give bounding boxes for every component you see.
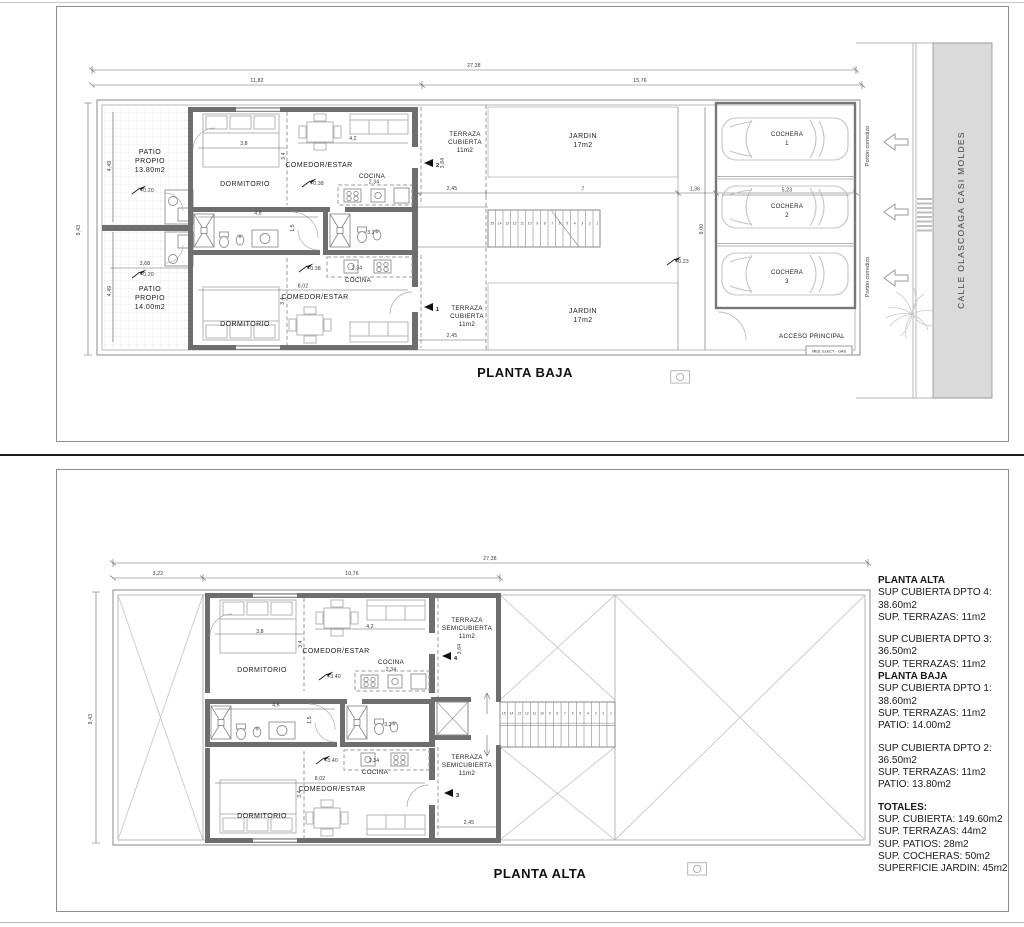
dim-label: 3,8	[256, 629, 264, 635]
room-area-label: 17m2	[573, 142, 592, 149]
stair-step-number: 15	[502, 712, 506, 716]
level-label: +0.20	[140, 188, 154, 194]
dim-label: 3,8	[240, 141, 248, 147]
room-area-label: 11m2	[459, 633, 476, 640]
meter-box-label: MED. ELECT. - GAS	[812, 350, 846, 354]
pa-level-markers	[316, 672, 334, 765]
pb-corridor-baths	[188, 207, 690, 383]
dim-label: 3,4	[298, 640, 304, 648]
stair-step-number: 8	[544, 222, 546, 226]
cochera-number: 3	[785, 279, 789, 285]
unit2-entry-arrow-icon	[424, 159, 433, 167]
dim-label: 4,49	[107, 286, 113, 297]
dim-label: 9,00	[699, 224, 705, 235]
stair-step-number: 14	[510, 712, 514, 716]
street-name-label: CALLE OLASCOAGA CASI MOLDES	[956, 131, 966, 309]
pa-corridor-baths	[205, 699, 707, 875]
room-label-cocina: COCINA	[378, 659, 405, 666]
stair-step-number: 6	[559, 222, 561, 226]
dim-label: 15,76	[633, 78, 647, 84]
dim-label: 2,34	[352, 266, 363, 272]
room-label-dormitorio: DORMITORIO	[220, 181, 270, 188]
stair-step-number: 14	[498, 222, 502, 226]
room-label-jardin: JARDIN	[569, 133, 597, 140]
summary-line: 38.60m2	[878, 696, 1016, 708]
room-area-label: 13.80m2	[135, 167, 165, 174]
summary-line: TOTALES:	[878, 802, 1016, 814]
room-area-label: 14.00m2	[135, 304, 165, 311]
dim-label: 2,45	[447, 333, 458, 339]
room-label-terraza: SEMICUBIERTA	[442, 762, 493, 769]
dim-label: 2,34	[369, 180, 380, 186]
stair-step-number: 10	[528, 222, 532, 226]
level-label: +0.38	[307, 266, 321, 272]
room-label-dormitorio: DORMITORIO	[237, 667, 287, 674]
room-label-cochera: COCHERA	[771, 270, 803, 276]
pa-unit-bottom	[205, 748, 435, 843]
dim-label: 1,36	[690, 187, 701, 193]
stair-step-number: 10	[540, 712, 544, 716]
level-label: +3.40	[327, 674, 341, 680]
level-label: +0.23	[675, 259, 689, 265]
dim-label: 8,02	[298, 284, 309, 290]
stair-step-number: 9	[549, 712, 551, 716]
dim-label: 3,84	[440, 158, 446, 169]
dim-label: 3,22	[153, 571, 164, 577]
summary-line: SUP. TERRAZAS: 11m2	[878, 659, 1016, 671]
room-label-dormitorio: DORMITORIO	[237, 813, 287, 820]
stair-step-number: 12	[525, 712, 529, 716]
pb-title: PLANTA BAJA	[477, 365, 573, 380]
room-area-label: 11m2	[459, 321, 476, 328]
pa-labels: 27,38 3,22 10,76 9,43 3,8 4,2 3,4 2,34 4…	[88, 556, 586, 881]
cochera-number: 1	[785, 141, 789, 147]
planta-alta-plan: 151413121110987654321 27,38 3,22 10,76 9…	[88, 556, 871, 881]
unit-number: 4	[454, 656, 458, 662]
stair-step-number: 4	[587, 712, 589, 716]
unit-number: 1	[436, 307, 439, 313]
drawing-sheet: 151413121110987654321	[0, 0, 1024, 927]
stair-step-number: 7	[551, 222, 553, 226]
room-label-patio: PATIO	[139, 149, 161, 156]
dim-label: 9,43	[88, 714, 94, 725]
stair-step-number: 13	[517, 712, 521, 716]
stair-step-number: 5	[579, 712, 581, 716]
stair-step-number: 7	[564, 712, 566, 716]
summary-line: 36.50m2	[878, 646, 1016, 658]
stair-step-number: 12	[513, 222, 517, 226]
dim-label: 1,5	[307, 716, 313, 724]
stair-step-number: 2	[602, 712, 604, 716]
dim-label: 7	[582, 187, 585, 193]
dim-label: 4,6	[254, 211, 262, 217]
acceso-label: ACCESO PRINCIPAL	[779, 333, 845, 340]
summary-line: SUP. TERRAZAS: 11m2	[878, 767, 1016, 779]
summary-line: 36.50m2	[878, 755, 1016, 767]
area-summary-panel: PLANTA ALTASUP CUBIERTA DPTO 4:38.60m2SU…	[878, 575, 1016, 876]
tree-icon	[886, 288, 936, 338]
stair-step-number: 1	[596, 222, 598, 226]
summary-line: SUP CUBIERTA DPTO 1:	[878, 683, 1016, 695]
stair-step-number: 8	[556, 712, 558, 716]
room-label-terraza: CUBIERTA	[450, 313, 484, 320]
room-label-terraza: TERRAZA	[451, 754, 483, 761]
stair-step-number: 3	[595, 712, 597, 716]
unit-number: 2	[436, 163, 439, 169]
stair-step-number: 5	[566, 222, 568, 226]
room-label-patio: PATIO	[139, 286, 161, 293]
level-label: +0.38	[310, 181, 324, 187]
summary-line: SUP. CUBIERTA: 149.60m2	[878, 814, 1016, 826]
dim-label: 4,2	[349, 136, 357, 142]
cochera-number: 2	[785, 213, 789, 219]
room-label-terraza: TERRAZA	[451, 617, 483, 624]
stair-step-number: 11	[520, 222, 524, 226]
room-label-comedor: COMEDOR/ESTAR	[298, 786, 365, 793]
room-label-patio: PROPIO	[135, 158, 165, 165]
room-label-cochera: COCHERA	[771, 204, 803, 210]
stair-step-number: 1	[610, 712, 612, 716]
summary-line: SUP. PATIOS: 28m2	[878, 839, 1016, 851]
entry-arrow-icon	[884, 270, 908, 286]
planta-baja-plan: 151413121110987654321	[76, 43, 992, 398]
unit4-entry-arrow-icon	[442, 652, 451, 660]
room-label-terraza: CUBIERTA	[448, 139, 482, 146]
summary-line: 38.60m2	[878, 600, 1016, 612]
room-label-dormitorio: DORMITORIO	[220, 321, 270, 328]
porton-label: Portón corredizo	[865, 126, 871, 166]
dim-label: 4,2	[366, 624, 374, 630]
pb-unit-top	[188, 107, 418, 207]
room-area-label: 11m2	[459, 770, 476, 777]
dim-label: 2,45	[464, 820, 475, 826]
pb-patios	[102, 105, 193, 350]
room-label-cocina: COCINA	[362, 769, 389, 776]
dim-label: 3,2	[384, 722, 392, 728]
summary-line: PATIO: 13.80m2	[878, 779, 1016, 791]
dim-label: 5,23	[782, 188, 793, 194]
dim-label: 4,6	[272, 703, 280, 709]
room-label-terraza: SEMICUBIERTA	[442, 625, 493, 632]
entry-arrow-icon	[884, 204, 908, 220]
room-label-terraza: TERRAZA	[451, 305, 483, 312]
summary-line: SUP. TERRAZAS: 11m2	[878, 612, 1016, 624]
room-label-terraza: TERRAZA	[449, 131, 481, 138]
dim-label: 3,4	[281, 152, 287, 160]
dim-label: 3,2	[367, 230, 375, 236]
stair-step-number: 4	[574, 222, 576, 226]
pa-stair-numbers: 151413121110987654321	[502, 712, 612, 716]
dim-label: 3,84	[457, 644, 463, 655]
level-label: +0.20	[140, 272, 154, 278]
unit1-entry-arrow-icon	[424, 303, 433, 311]
summary-line: SUP. TERRAZAS: 44m2	[878, 826, 1016, 838]
unit3-entry-arrow-icon	[444, 789, 453, 797]
stair-step-number: 9	[536, 222, 538, 226]
level-label: +3.40	[324, 758, 338, 764]
room-label-comedor: COMEDOR/ESTAR	[302, 648, 369, 655]
stair-step-number: 6	[572, 712, 574, 716]
summary-line: SUP. COCHERAS: 50m2	[878, 851, 1016, 863]
stair-step-number: 3	[581, 222, 583, 226]
room-label-patio: PROPIO	[135, 295, 165, 302]
dim-label: 27,38	[467, 63, 481, 69]
stair-step-number: 11	[533, 712, 537, 716]
dim-label: 2,34	[386, 667, 397, 673]
dim-label: 8,02	[315, 776, 326, 782]
dim-label: 1,5	[290, 224, 296, 232]
summary-line: PATIO: 14.00m2	[878, 720, 1016, 732]
stair-step-number: 2	[589, 222, 591, 226]
dim-label: 4,49	[107, 161, 113, 172]
room-label-cochera: COCHERA	[771, 132, 803, 138]
summary-line: PLANTA ALTA	[878, 575, 1016, 587]
car-icon	[722, 118, 848, 160]
room-label-cocina: COCINA	[345, 277, 372, 284]
stair-step-number: 15	[490, 222, 494, 226]
dim-label: 10,76	[345, 571, 359, 577]
summary-line: SUP CUBIERTA DPTO 2:	[878, 743, 1016, 755]
pb-stairs: 151413121110987654321	[488, 210, 600, 247]
dim-label: 11,82	[250, 78, 263, 84]
entry-arrow-icon	[884, 134, 908, 150]
pb-stair-numbers: 151413121110987654321	[490, 222, 598, 226]
crosswalk-hatch	[917, 199, 932, 231]
dim-label: 2,34	[369, 758, 380, 764]
room-label-cocina: COCINA	[359, 173, 386, 180]
summary-line: SUPERFICIE JARDIN: 45m2	[878, 863, 1016, 875]
room-area-label: 11m2	[457, 147, 474, 154]
room-label-comedor: COMEDOR/ESTAR	[281, 294, 348, 301]
summary-line: SUP CUBIERTA DPTO 4:	[878, 587, 1016, 599]
unit-number: 3	[456, 793, 459, 799]
dim-label: 9,43	[76, 225, 82, 236]
pb-street	[856, 43, 992, 398]
dim-label: 27,38	[483, 556, 497, 562]
dim-label: 2,45	[447, 186, 458, 192]
dim-label: 3,68	[140, 261, 151, 267]
stair-step-number: 13	[505, 222, 509, 226]
room-area-label: 17m2	[573, 317, 592, 324]
room-label-comedor: COMEDOR/ESTAR	[285, 162, 352, 169]
pa-unit-top	[205, 593, 435, 693]
summary-line: SUP CUBIERTA DPTO 3:	[878, 634, 1016, 646]
summary-line: PLANTA BAJA	[878, 671, 1016, 683]
pa-stairs: 151413121110987654321	[431, 693, 615, 756]
pa-title: PLANTA ALTA	[494, 866, 587, 881]
summary-line: SUP. TERRAZAS: 11m2	[878, 708, 1016, 720]
floorplan-drawing: 151413121110987654321	[0, 0, 1024, 927]
porton-label: Portón corredizo	[865, 257, 871, 297]
room-label-jardin: JARDIN	[569, 308, 597, 315]
